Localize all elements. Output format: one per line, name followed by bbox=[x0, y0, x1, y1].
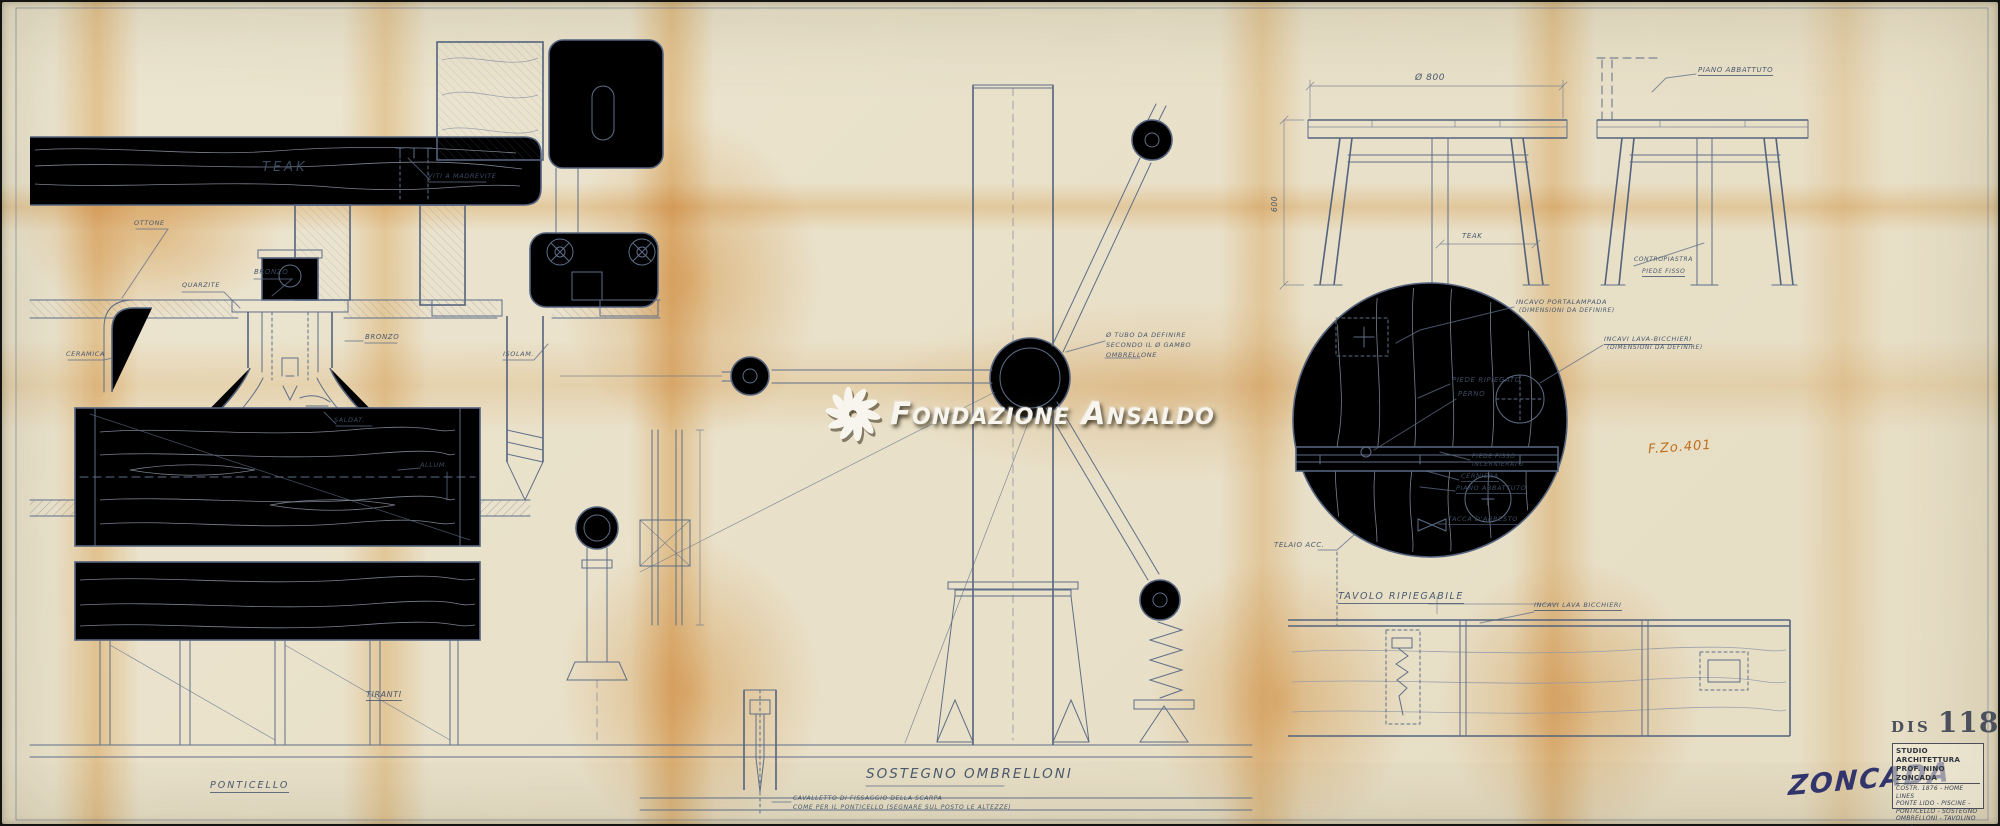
material-label-ceramica: CERAMICA bbox=[66, 350, 105, 358]
deck-section-detail bbox=[1288, 620, 1790, 736]
scanned-drawing-sheet: TEAK VITI A MADREVITE BRONZO BRONZO QUAR… bbox=[0, 0, 2000, 826]
note-tacca-arresto: TACCA D'ARRESTO bbox=[1448, 515, 1518, 525]
table-plan-circle bbox=[1293, 283, 1567, 625]
table-elevation-folded bbox=[1597, 58, 1808, 285]
view-title-tavolo-ripiegabile: TAVOLO RIPIEGABILE bbox=[1338, 591, 1464, 604]
subject-line-1: COSTR. 1876 - HOME LINES bbox=[1896, 785, 1980, 800]
note-piano-abbattuto-top: PIANO ABBATTUTO bbox=[1698, 66, 1773, 76]
note-viti: VITI A MADREVITE bbox=[428, 172, 497, 180]
dimension-600: 600 bbox=[1270, 196, 1279, 212]
watermark-brand: Fondazione Ansaldo bbox=[890, 396, 1215, 432]
note-piede-ripiegato: PIEDE RIPIEGATO bbox=[1452, 376, 1521, 384]
note-tubo-1: Ø TUBO DA DEFINIRE bbox=[1106, 331, 1186, 339]
note-tubo-3: OMBRELLONE bbox=[1106, 351, 1157, 359]
pinwheel-icon bbox=[820, 381, 886, 447]
material-label-teak-table: TEAK bbox=[1462, 232, 1482, 240]
subject-line-2: PONTE LIDO - PISCINE - bbox=[1896, 800, 1980, 808]
note-tiranti: TIRANTI bbox=[366, 690, 402, 701]
material-label-bronzo-2: BRONZO bbox=[365, 333, 399, 341]
material-label-ottone: OTTONE bbox=[134, 219, 165, 227]
anchor-detail bbox=[744, 690, 776, 815]
material-label-isolamento: ISOLAM. bbox=[503, 350, 534, 358]
ponticello-elevation bbox=[75, 562, 480, 745]
note-contropiastra: CONTROPIASTRA bbox=[1634, 256, 1693, 263]
note-perno: PERNO bbox=[1458, 390, 1485, 398]
support-post-detail bbox=[567, 507, 627, 745]
note-piano-abbattuto-circle: PIANO ABBATTUTO bbox=[1456, 484, 1526, 494]
note-incernierato: INCERNIERATO bbox=[1472, 461, 1524, 468]
note-saldatura: SALDAT. bbox=[334, 416, 365, 424]
note-piede-fisso: PIEDE FISSO bbox=[1472, 453, 1515, 460]
title-block: STUDIO ARCHITETTURA PROF. NINO ZONCADA C… bbox=[1892, 743, 1984, 809]
material-label-bronzo-1: BRONZO bbox=[254, 268, 288, 276]
view-title-ponticello: PONTICELLO bbox=[210, 780, 289, 793]
material-label-quarzite: QUARZITE bbox=[182, 281, 220, 289]
watermark: Fondazione Ansaldo bbox=[820, 381, 1215, 447]
note-telaio-acc: TELAIO ACC. bbox=[1274, 541, 1325, 549]
drawing-number-heading: DIS 118 bbox=[1891, 706, 1999, 739]
note-cavalletto-2: COME PER IL PONTICELLO (SEGNARE SUL POST… bbox=[793, 804, 1011, 811]
table-elevation-fixed bbox=[1280, 80, 1567, 289]
note-cavalletto-1: CAVALLETTO DI FISSAGGIO DELLA SCARPA bbox=[793, 795, 942, 802]
view-title-sostegno-ombrelloni: SOSTEGNO OMBRELLONI bbox=[866, 766, 1073, 782]
subject-line-4: OMBRELLONI - TAVOLINO bbox=[1896, 815, 1980, 823]
dis-label: DIS bbox=[1891, 718, 1931, 736]
note-incavo-portalampada-2: (DIMENSIONI DA DEFINIRE) bbox=[1519, 307, 1615, 314]
teak-plank-section bbox=[30, 40, 663, 233]
note-cerniera: CERNIERA bbox=[1461, 472, 1499, 482]
dimension-diameter-800: Ø 800 bbox=[1415, 73, 1445, 83]
architect-name: PROF. NINO ZONCADA bbox=[1896, 764, 1980, 784]
subject-line-3: PONTICELLO - SOSTEGNO bbox=[1896, 808, 1980, 816]
channel-detail bbox=[640, 430, 704, 625]
note-piede-fisso-top: PIEDE FISSO bbox=[1642, 268, 1685, 277]
material-label-teak: TEAK bbox=[262, 160, 308, 175]
note-incavo-portalampada: INCAVO PORTALAMPADA bbox=[1516, 298, 1607, 306]
dis-number: 118 bbox=[1938, 706, 1999, 739]
material-label-alluminio: ALLUM. bbox=[420, 461, 448, 469]
note-tubo-2: SECONDO IL Ø GAMBO bbox=[1106, 341, 1191, 349]
note-incavi-lava-bicchieri-bottom: INCAVI LAVA BICCHIERI bbox=[1534, 601, 1622, 611]
note-incavi-lavabicchieri-2: (DIMENSIONI DA DEFINIRE) bbox=[1607, 344, 1703, 351]
studio-name: STUDIO ARCHITETTURA bbox=[1896, 746, 1980, 764]
ponticello-plan bbox=[75, 408, 480, 546]
